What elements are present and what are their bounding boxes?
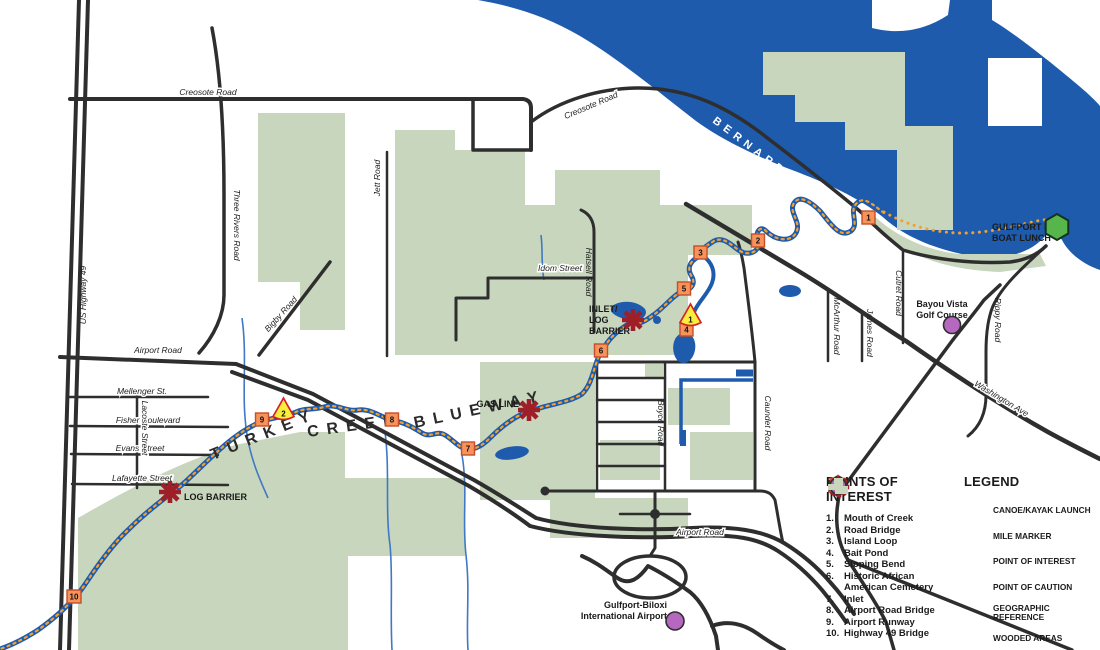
rippy-road-label: Rippy Road [993,298,1003,343]
us-highway-49-label: US Highway 49 [78,265,88,324]
poi-marker-8: 8 [386,413,399,426]
svg-text:9: 9 [260,416,265,425]
poi-marker-9: 9 [256,413,269,426]
info-panel: POINTS OF INTEREST 1.Mouth of Creek 2.Ro… [826,474,1100,650]
boyce-road-label: Boyce Road [656,400,666,447]
points-of-interest-list: POINTS OF INTEREST 1.Mouth of Creek 2.Ro… [826,474,958,650]
inlet-log-barrier-caution-icon [622,309,644,331]
poi-marker-7: 7 [462,442,475,455]
airport-road-w-label: Airport Road [133,345,182,355]
poi-list-item: 8.Airport Road Bridge [826,605,958,617]
airport-road-s-label: Airport Road [675,527,724,537]
poi-marker-1: 1 [862,211,875,224]
poi-list-item: 10.Highway 49 Bridge [826,628,958,640]
svg-text:2: 2 [756,237,761,246]
svg-text:4: 4 [684,326,689,335]
washington-ave-label: Washington Ave [973,378,1031,418]
svg-text:LOG: LOG [589,315,609,325]
svg-text:8: 8 [390,416,395,425]
poi-list-item: 3.Island Loop [826,536,958,548]
road-lafayette [72,484,228,485]
log-barrier-label: LOG BARRIER [184,492,248,502]
bait-pond [673,333,695,363]
james-road-label: James Road [865,308,875,357]
svg-text:1: 1 [688,316,693,325]
poi-list-item: 2.Road Bridge [826,525,958,537]
svg-text:10: 10 [70,593,79,602]
inlet-log-barrier-label: INLET/ [589,304,618,314]
legend-title: LEGEND [964,474,1100,489]
legend-item: MILE MARKER [964,524,1100,550]
boat-launch-icon [1046,214,1069,240]
legend-item: POINT OF INTEREST [964,549,1100,575]
legend-item: POINT OF CAUTION [964,575,1100,601]
svg-text:International Airport: International Airport [581,611,667,621]
mcarthur-road-label: McArthur Road [832,297,842,354]
legend: LEGEND CANOE/KAYAK LAUNCH MILE MARKER PO… [964,474,1100,650]
svg-text:7: 7 [466,445,471,454]
poi-marker-6: 6 [595,344,608,357]
gulfport-airport-label: Gulfport-Biloxi [604,600,667,610]
hatsell-road-label: Hatsell Road [584,248,594,297]
poi-list-item: 6.Historic African American Cemetery [826,571,958,594]
poi-list-item: 1.Mouth of Creek [826,513,958,525]
gas-line-label: GAS LINE [476,399,519,409]
poi-marker-2: 2 [752,234,765,247]
caundet-road-label: Caundet Road [763,396,773,451]
mile-marker-2: 2 [273,398,294,420]
legend-item: GEOGRAPHIC REFERENCE [964,600,1100,626]
road-airport-w [60,357,236,364]
creosote-road-w-label: Creosote Road [179,87,236,97]
poi-list-item: 5.Sloping Bend [826,559,958,571]
canoe-launch-marker [1046,214,1069,240]
svg-text:3: 3 [698,249,703,258]
poi-list-item: 4.Bait Pond [826,548,958,560]
idom-street-label: Idom Street [538,263,583,273]
turkey-creek-blueway-map: BERNARD BAYOU [0,0,1100,650]
svg-text:BOAT LUNCH: BOAT LUNCH [992,233,1051,243]
legend-item: CANOE/KAYAK LAUNCH [964,498,1100,524]
bayou-vista-label: Bayou Vista [916,299,968,309]
svg-text:2: 2 [281,410,286,419]
road-three-rivers [199,28,224,353]
lafayette-street-label: Lafayette Street [112,473,173,483]
jett-road-label: Jett Road [372,160,382,198]
mellenger-st-label: Mellenger St. [117,386,167,396]
svg-text:BARRIER: BARRIER [589,326,631,336]
svg-text:6: 6 [599,347,604,356]
poi-marker-3: 3 [694,246,707,259]
poi-marker-5: 5 [678,282,691,295]
cutret-road-label: Cutret Road [894,270,904,316]
svg-text:5: 5 [682,285,687,294]
svg-text:1: 1 [866,214,871,223]
legend-item: WOODED AREAS [964,626,1100,650]
airport-geo-icon [666,612,684,630]
lacoste-street-label: Lacoste Street [140,401,150,456]
gas-line-caution-icon [518,399,540,421]
poi-marker-10: 10 [67,590,81,603]
poi-list-item: 7.Inlet [826,594,958,606]
svg-text:Golf Course: Golf Course [916,310,968,320]
three-rivers-road-label: Three Rivers Road [232,189,242,261]
poi-list-item: 9.Airport Runway [826,617,958,629]
golf-course-geo-icon [944,317,961,334]
log-barrier-caution-icon [159,481,181,503]
